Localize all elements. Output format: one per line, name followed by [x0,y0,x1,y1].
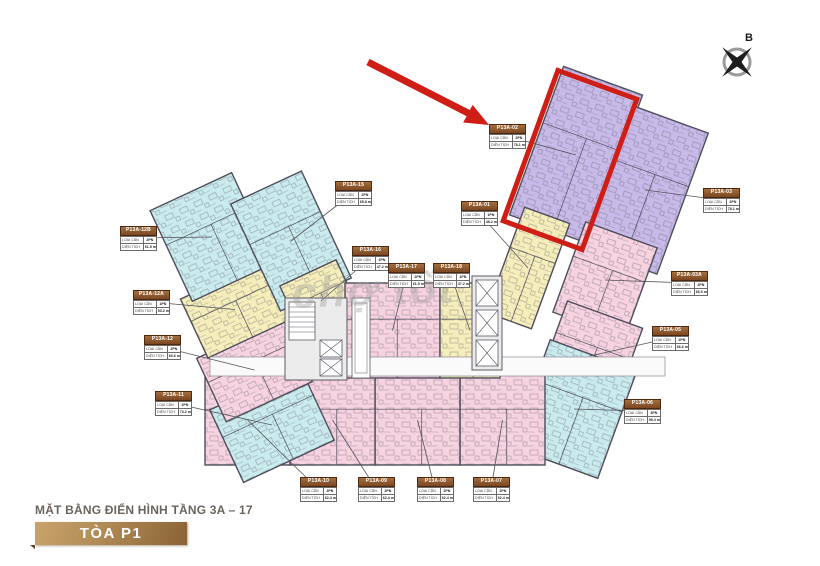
plan-title: MẶT BẰNG ĐIỂN HÌNH TẦNG 3A – 17 [35,503,253,517]
compass-north-label: B [745,32,753,44]
floorplan-page: chợ tốt P13A-02 LOẠI CĂN 2PN DIỆN TÍCH 7… [0,0,820,566]
compass-icon [722,47,752,77]
watermark: chợ tốt [291,263,456,319]
corridor [210,357,665,376]
tower-banner: TÒA P1 [35,522,187,545]
highlight-arrow [368,62,489,125]
